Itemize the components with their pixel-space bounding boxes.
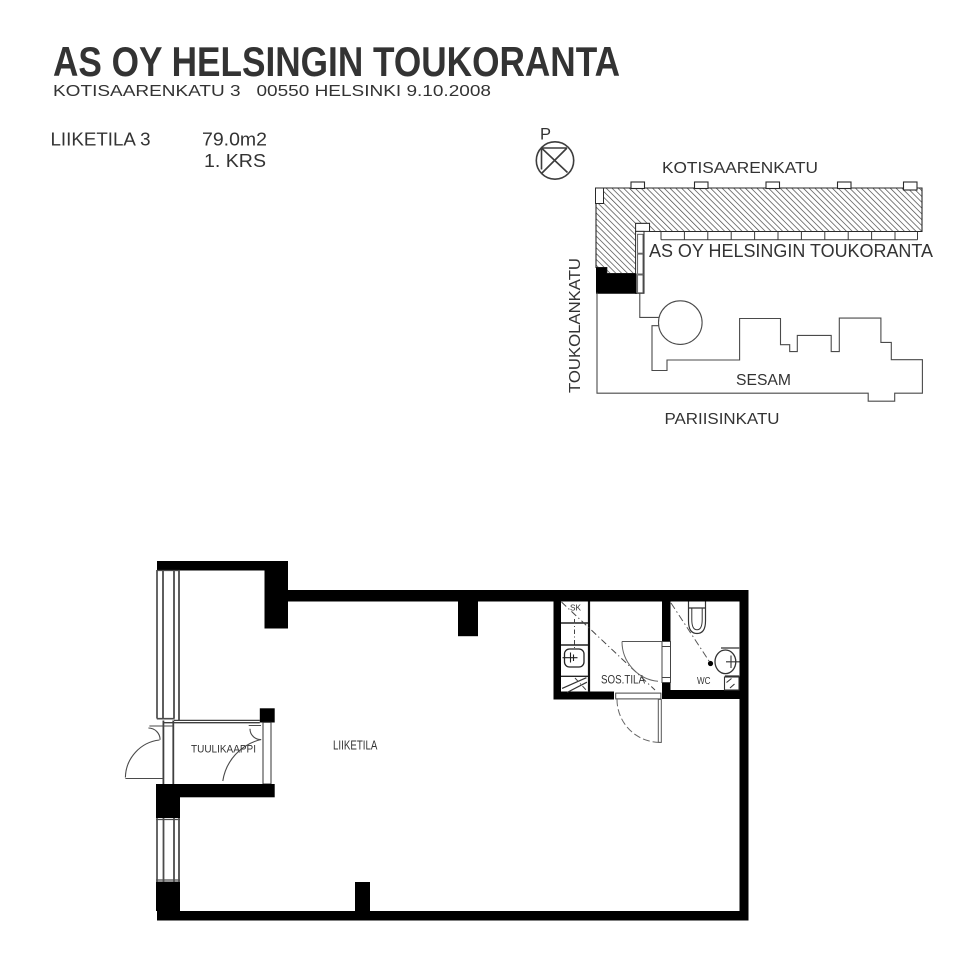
- svg-text:TOUKOLANKATU: TOUKOLANKATU: [567, 258, 584, 393]
- svg-text:SK: SK: [570, 603, 581, 613]
- svg-text:P: P: [540, 126, 551, 144]
- svg-text:PARIISINKATU: PARIISINKATU: [665, 411, 780, 428]
- svg-text:AS OY HELSINGIN TOUKORANTA: AS OY HELSINGIN TOUKORANTA: [53, 38, 620, 85]
- svg-text:SESAM: SESAM: [736, 372, 791, 389]
- svg-text:TUULIKAAPPI: TUULIKAAPPI: [191, 744, 256, 756]
- svg-text:KOTISAARENKATU: KOTISAARENKATU: [662, 160, 818, 177]
- svg-text:79.0m2: 79.0m2: [202, 129, 267, 149]
- svg-text:1. KRS: 1. KRS: [204, 151, 266, 171]
- svg-text:KOTISAARENKATU 3 00550 HEL: KOTISAARENKATU 3 00550 HELSINKI 9.10.200…: [53, 83, 491, 100]
- svg-text:LIIKETILA 3: LIIKETILA 3: [51, 129, 151, 149]
- svg-text:AS OY HELSINGIN TOUKORANTA: AS OY HELSINGIN TOUKORANTA: [649, 241, 933, 261]
- svg-text:SOS.TILA: SOS.TILA: [601, 675, 645, 687]
- svg-text:LIIKETILA: LIIKETILA: [333, 738, 378, 752]
- svg-text:WC: WC: [697, 675, 711, 687]
